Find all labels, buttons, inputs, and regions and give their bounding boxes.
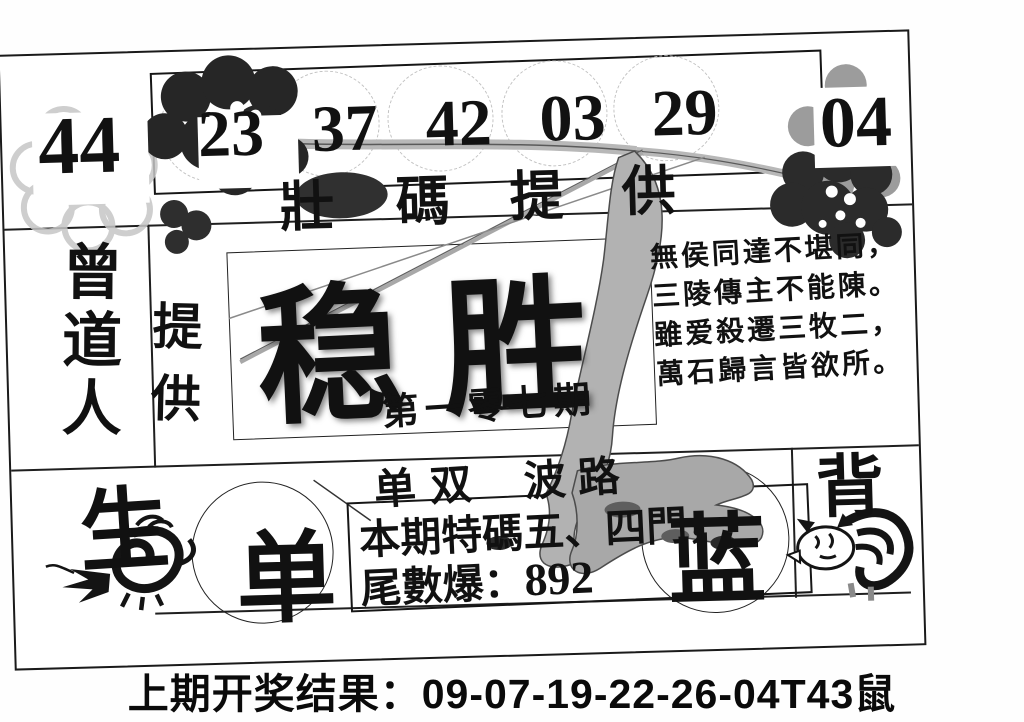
banner-char-3: 提: [509, 151, 565, 231]
provide-label: 提供: [135, 299, 210, 445]
sheng-char: 生: [75, 455, 173, 590]
number-circled-4: 03: [539, 80, 607, 158]
number-circled-5: 29: [650, 75, 718, 153]
number-left: 44: [37, 97, 122, 193]
number-right: 04: [819, 80, 893, 165]
tip-line-2-value: 892: [523, 551, 594, 605]
number-circled-3: 42: [425, 85, 493, 163]
tip-line-2-label: 尾數爆：: [360, 558, 526, 613]
poem-block: 無侯同達不堪同， 三陵傳主不能陳。 雖爱殺遷三牧二， 萬石歸言皆欲所。: [649, 225, 907, 394]
tip-line-2: 尾數爆：892: [359, 544, 594, 615]
banner-char-4: 供: [620, 146, 676, 226]
zodiac-back-char: 背: [814, 430, 885, 531]
number-circled-1: 23: [197, 95, 265, 173]
number-circled-2: 37: [311, 90, 379, 168]
previous-draw-result: 上期开奖结果：09-07-19-22-26-04T43鼠: [0, 660, 1024, 720]
divider-under-banner: [4, 203, 912, 230]
tipster-name: 曾道人: [53, 240, 120, 444]
lottery-sheet: 44 23 37 42 03 29 04 壯 碼 提 供 曾道人 提供 生 稳胜…: [0, 29, 926, 670]
banner-char-1: 壯: [279, 162, 335, 242]
banner-char-2: 碼: [395, 156, 451, 236]
odd-circle-char: 单: [234, 496, 338, 644]
